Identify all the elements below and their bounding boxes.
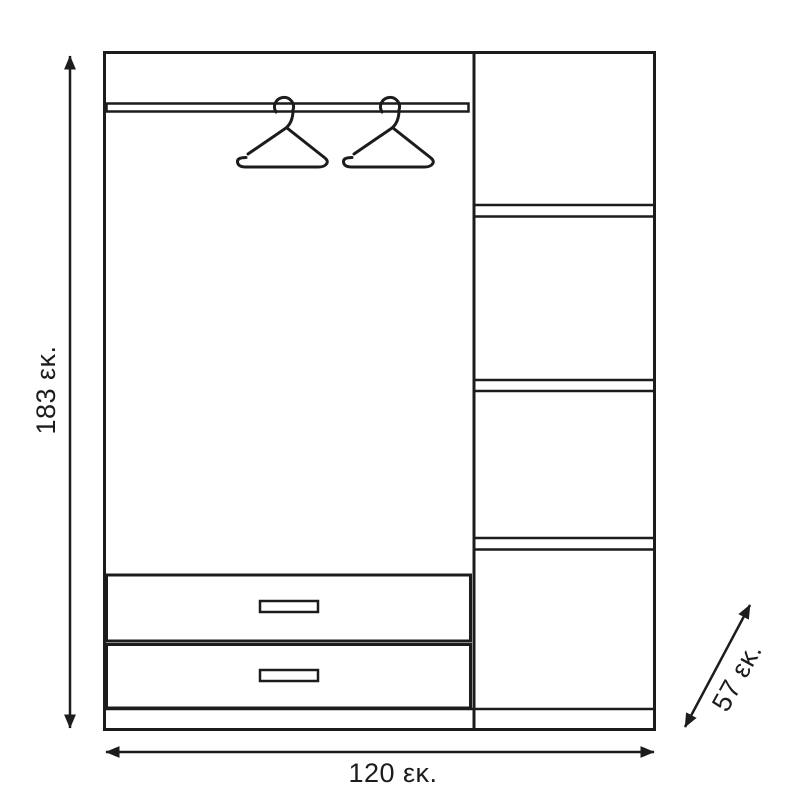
depth-dimension-label: 57 εκ. <box>706 638 768 717</box>
dimension-labels: 183 εκ. 120 εκ. 57 εκ. <box>31 345 768 788</box>
shelf-dividers <box>474 205 655 550</box>
height-dimension-label: 183 εκ. <box>31 345 61 434</box>
drawer <box>107 575 471 641</box>
hanging-rail <box>107 104 469 112</box>
diagram-canvas: 183 εκ. 120 εκ. 57 εκ. <box>0 0 800 800</box>
dimension-arrows <box>70 56 750 752</box>
drawer-unit <box>107 575 471 708</box>
drawer-handle <box>260 601 318 612</box>
furniture-outline <box>70 53 750 753</box>
width-dimension-label: 120 εκ. <box>348 758 437 788</box>
drawer <box>107 645 471 709</box>
drawer-handle <box>260 670 318 681</box>
wardrobe-dimension-diagram: 183 εκ. 120 εκ. 57 εκ. <box>0 0 800 800</box>
